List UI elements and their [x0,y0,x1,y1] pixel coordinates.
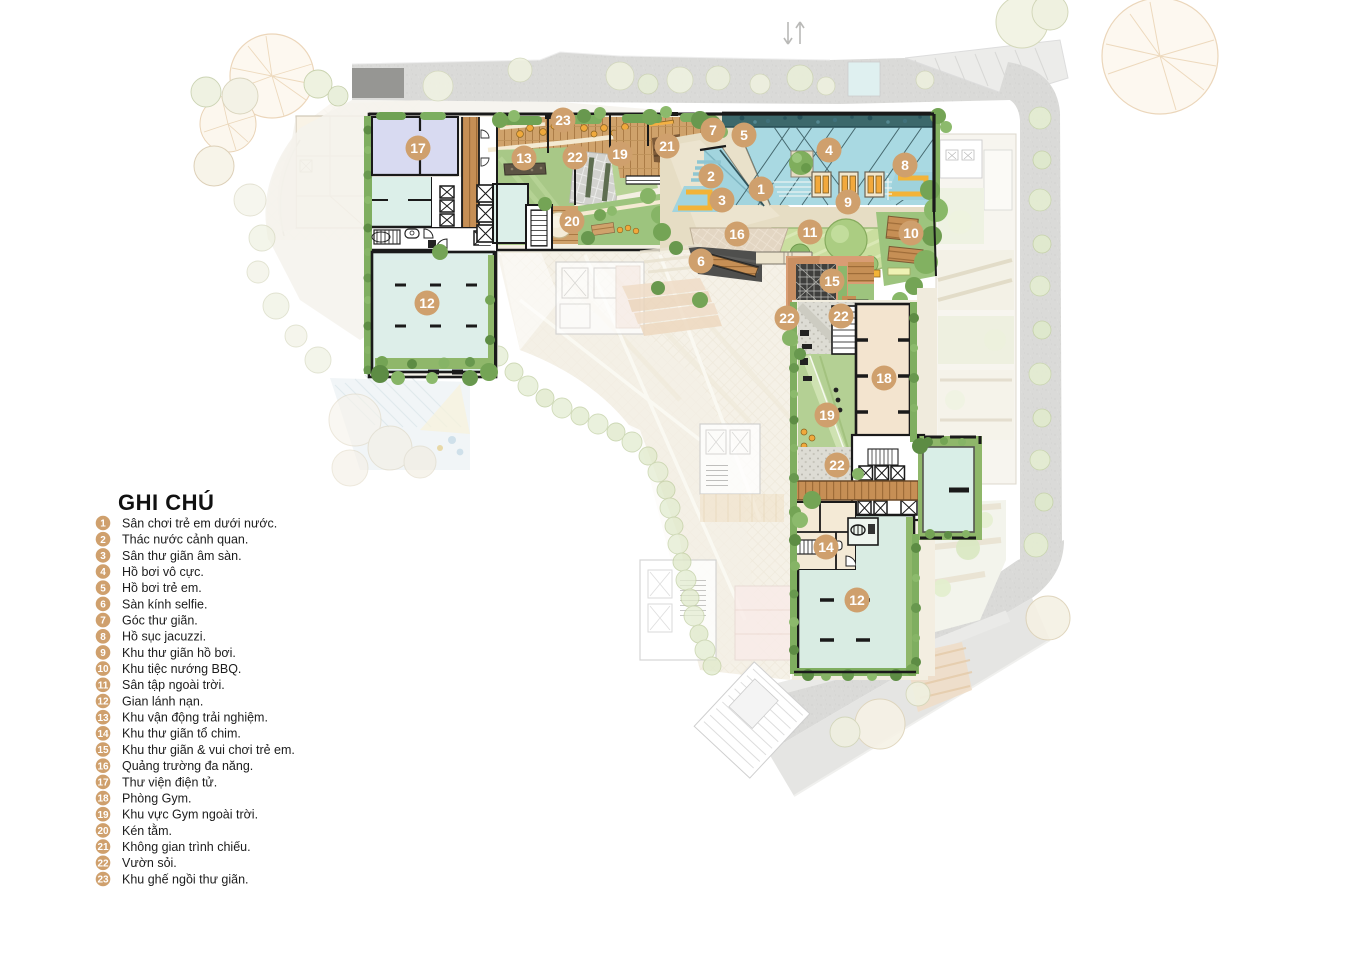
svg-text:Sàn kính selfie.: Sàn kính selfie. [122,597,207,611]
svg-text:2: 2 [707,168,715,184]
svg-text:22: 22 [97,858,109,869]
svg-text:22: 22 [779,310,795,326]
svg-text:GHI CHÚ: GHI CHÚ [118,490,214,515]
svg-text:7: 7 [100,616,106,627]
svg-text:23: 23 [97,875,109,886]
svg-text:22: 22 [833,308,849,324]
svg-text:8: 8 [901,157,909,173]
svg-text:Thác nước cảnh quan.: Thác nước cảnh quan. [122,533,248,547]
svg-text:3: 3 [718,192,726,208]
svg-text:Khu vận động trải nghiệm.: Khu vận động trải nghiệm. [122,711,268,725]
svg-text:Vườn sỏi.: Vườn sỏi. [122,856,177,870]
svg-text:18: 18 [876,370,892,386]
svg-text:13: 13 [97,713,109,724]
svg-text:8: 8 [100,632,106,643]
svg-text:7: 7 [709,122,717,138]
svg-text:Khu thư giãn & vui chơi trẻ em: Khu thư giãn & vui chơi trẻ em. [122,743,295,757]
svg-text:6: 6 [100,600,106,611]
svg-text:Phòng Gym.: Phòng Gym. [122,792,191,806]
svg-text:Hồ bơi vô cực.: Hồ bơi vô cực. [122,565,204,579]
svg-text:19: 19 [819,407,835,423]
svg-text:Thư viện điện tử.: Thư viện điện tử. [122,775,217,789]
svg-text:23: 23 [555,112,571,128]
svg-text:19: 19 [612,146,628,162]
svg-text:2: 2 [100,535,106,546]
svg-text:10: 10 [903,225,919,241]
svg-text:Gian lánh nạn.: Gian lánh nạn. [122,694,203,708]
svg-text:6: 6 [697,253,705,269]
svg-text:Khu vực Gym ngoài trời.: Khu vực Gym ngoài trời. [122,808,258,822]
svg-text:22: 22 [829,457,845,473]
svg-text:Góc thư giãn.: Góc thư giãn. [122,614,198,628]
svg-text:21: 21 [659,138,675,154]
svg-text:12: 12 [97,697,109,708]
svg-text:11: 11 [98,680,109,691]
svg-text:13: 13 [516,150,532,166]
svg-text:12: 12 [849,592,865,608]
svg-text:Khu tiệc nướng BBQ.: Khu tiệc nướng BBQ. [122,662,241,676]
svg-text:21: 21 [97,842,109,853]
svg-text:1: 1 [100,519,106,530]
svg-text:10: 10 [97,664,109,675]
svg-text:9: 9 [844,194,852,210]
svg-text:11: 11 [803,224,818,240]
svg-text:Hồ sục jacuzzi.: Hồ sục jacuzzi. [122,630,206,644]
svg-text:12: 12 [419,295,435,311]
svg-text:9: 9 [100,648,106,659]
svg-text:Khu thư giãn tổ chim.: Khu thư giãn tổ chim. [122,727,241,741]
svg-text:19: 19 [97,810,109,821]
svg-text:5: 5 [740,127,748,143]
svg-text:Không gian trình chiếu.: Không gian trình chiếu. [122,840,251,854]
svg-text:17: 17 [410,140,426,156]
svg-text:Sân tập ngoài trời.: Sân tập ngoài trời. [122,678,225,692]
svg-text:14: 14 [818,539,834,555]
svg-text:4: 4 [100,567,106,578]
svg-text:18: 18 [97,794,109,805]
svg-text:Khu thư giãn hồ bơi.: Khu thư giãn hồ bơi. [122,646,236,660]
svg-text:Sân chơi trẻ em dưới nước.: Sân chơi trẻ em dưới nước. [122,516,277,530]
svg-text:14: 14 [97,729,109,740]
svg-text:5: 5 [100,583,106,594]
svg-text:Sân thư giãn âm sàn.: Sân thư giãn âm sàn. [122,549,242,563]
svg-text:Hồ bơi trẻ em.: Hồ bơi trẻ em. [122,581,202,595]
svg-text:Quảng trường đa năng.: Quảng trường đa năng. [122,759,253,773]
svg-text:16: 16 [729,226,745,242]
svg-text:22: 22 [567,149,583,165]
svg-text:15: 15 [97,745,109,756]
svg-text:17: 17 [97,778,109,789]
svg-text:Kén tằm.: Kén tằm. [122,823,172,838]
svg-text:1: 1 [757,181,765,197]
svg-text:4: 4 [825,142,833,158]
svg-text:Khu ghế ngồi thư giãn.: Khu ghế ngồi thư giãn. [122,872,249,886]
svg-text:20: 20 [97,826,109,837]
svg-text:20: 20 [564,213,580,229]
svg-text:3: 3 [100,551,106,562]
svg-text:15: 15 [824,273,840,289]
svg-text:16: 16 [97,761,109,772]
